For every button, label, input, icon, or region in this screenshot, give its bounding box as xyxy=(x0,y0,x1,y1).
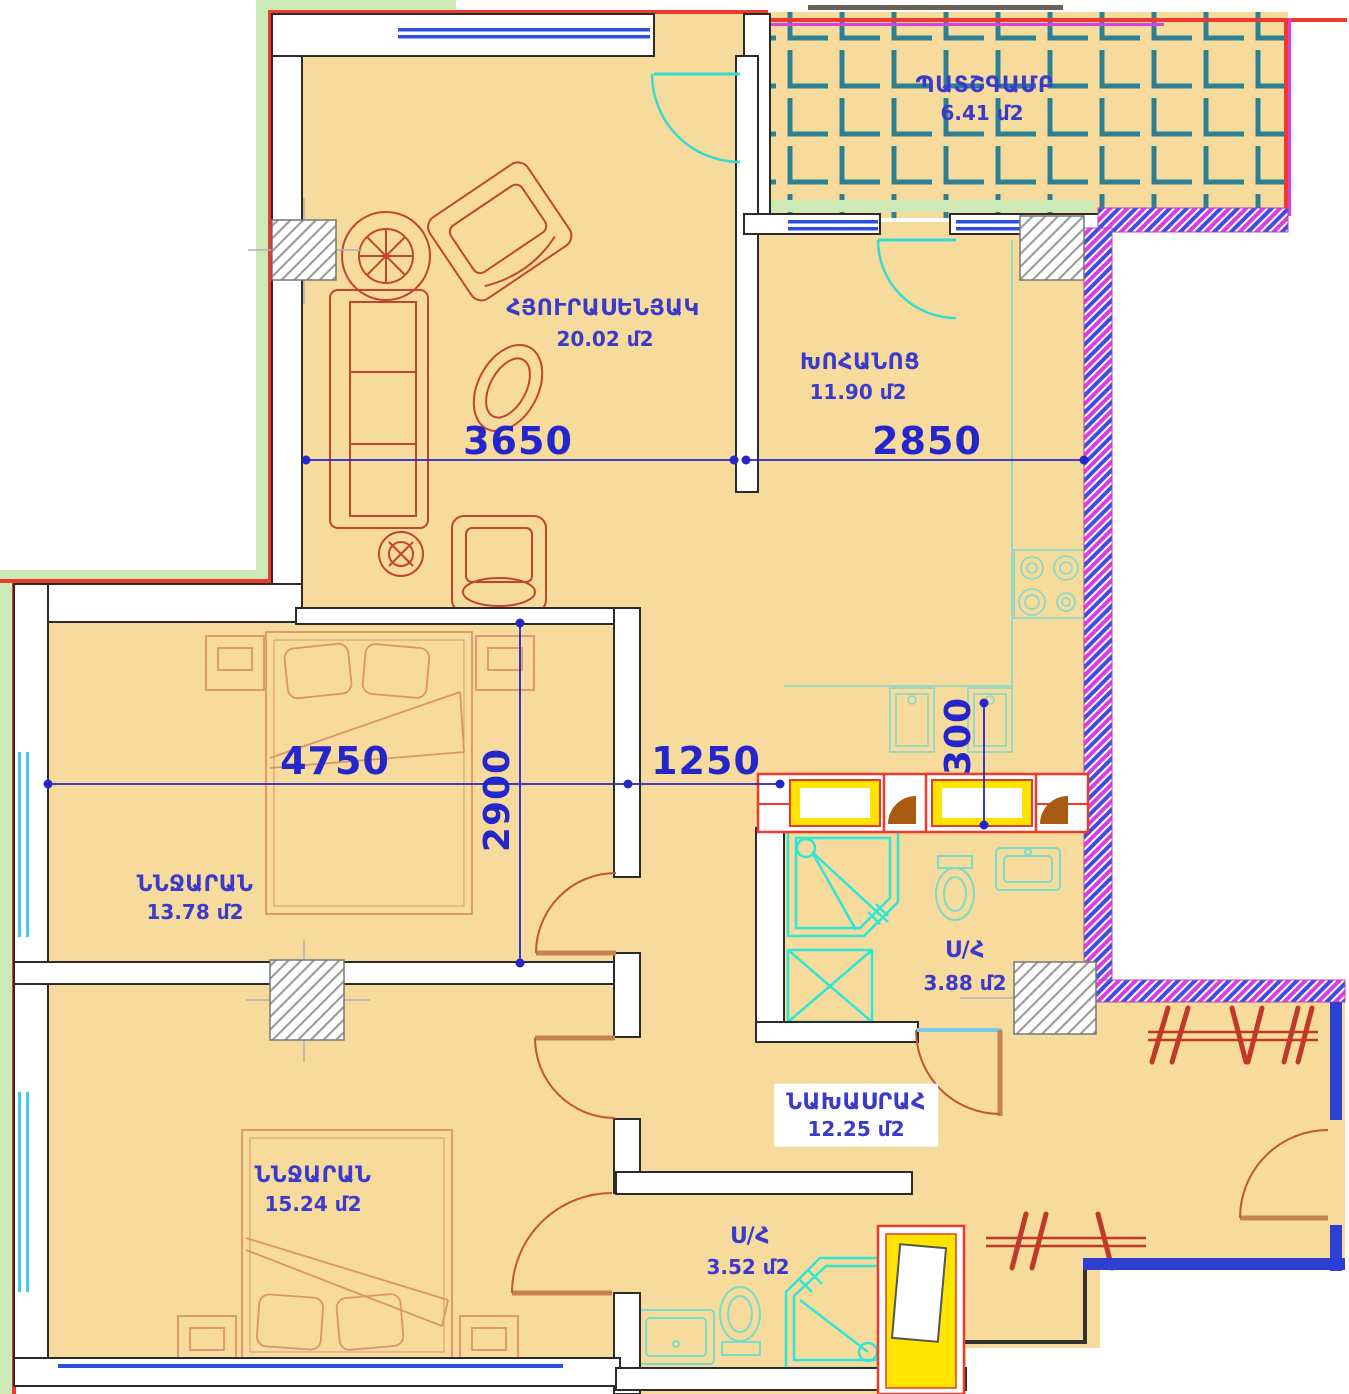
room-area-bedroom1: 13.78 մ2 xyxy=(147,901,244,923)
room-label-hall: ՆԱԽԱՍՐԱՀ 12.25 մ2 xyxy=(774,1084,938,1147)
room-area-bedroom2: 15.24 մ2 xyxy=(265,1193,362,1215)
room-label-living: ՀՅՈՒՐԱՍԵՆՅԱԿ xyxy=(506,297,699,321)
wall-hatched xyxy=(1098,208,1288,232)
window xyxy=(788,220,878,224)
room-label-bathroom1: Ս/Հ xyxy=(945,939,985,963)
column xyxy=(1020,216,1084,280)
window xyxy=(398,28,650,32)
wall-hatched xyxy=(1092,980,1345,1002)
bathroom2-duct xyxy=(878,1226,964,1394)
column xyxy=(270,960,344,1040)
dimension-living-width: 3650 xyxy=(463,421,573,463)
window xyxy=(18,1092,21,1292)
balcony-tiles xyxy=(768,12,1288,218)
room-label-bedroom1: ՆՆՋԱՐԱՆ xyxy=(137,873,254,897)
wall-blue xyxy=(1330,1002,1342,1120)
room-area-balcony: 6.41 մ2 xyxy=(940,102,1023,124)
service-door xyxy=(892,1244,946,1342)
wall xyxy=(614,608,640,877)
dimension-bedroom1-width: 4750 xyxy=(280,741,390,783)
floor-plan: ՀՅՈՒՐԱՍԵՆՅԱԿ 20.02 մ2 ԽՈՀԱՆՈՑ 11.90 մ2 Պ… xyxy=(0,0,1349,1394)
wall xyxy=(14,1358,620,1386)
room-area-bathroom2: 3.52 մ2 xyxy=(706,1256,789,1278)
window xyxy=(916,1028,1002,1032)
wall xyxy=(614,953,640,1037)
wall xyxy=(756,1022,918,1042)
duct-wall xyxy=(758,774,1088,832)
room-area-living: 20.02 մ2 xyxy=(557,328,654,350)
window xyxy=(18,752,21,937)
wall xyxy=(744,214,880,234)
room-label-balcony: ՊԱՏՇԳԱՄԲ xyxy=(916,74,1055,98)
wall xyxy=(14,584,302,622)
wall xyxy=(736,56,758,492)
wall-hatched xyxy=(1084,228,1112,988)
dimension-duct-width: 300 xyxy=(939,697,979,775)
room-label-bedroom2: ՆՆՋԱՐԱՆ xyxy=(255,1164,372,1188)
wall xyxy=(756,828,784,1028)
dimension-kitchen-width: 2850 xyxy=(872,421,982,463)
dimension-corridor-width: 1250 xyxy=(651,741,761,783)
wall xyxy=(616,1172,912,1194)
room-area-bathroom1: 3.88 մ2 xyxy=(923,972,1006,994)
window xyxy=(58,1364,563,1368)
wall xyxy=(272,14,302,590)
room-area-kitchen: 11.90 մ2 xyxy=(810,381,907,403)
column xyxy=(272,220,336,280)
column xyxy=(1014,962,1096,1034)
dimension-bedroom1-depth: 2900 xyxy=(478,748,518,852)
wall xyxy=(296,608,640,624)
hall-name: ՆԱԽԱՍՐԱՀ xyxy=(786,1089,926,1117)
room-label-kitchen: ԽՈՀԱՆՈՑ xyxy=(800,351,920,375)
hall-area: 12.25 մ2 xyxy=(786,1116,926,1141)
floor-plan-drawing xyxy=(0,0,1349,1394)
wall-blue xyxy=(1083,1258,1345,1270)
hatched-walls xyxy=(1084,208,1345,1002)
room-label-bathroom2: Ս/Հ xyxy=(730,1225,770,1249)
